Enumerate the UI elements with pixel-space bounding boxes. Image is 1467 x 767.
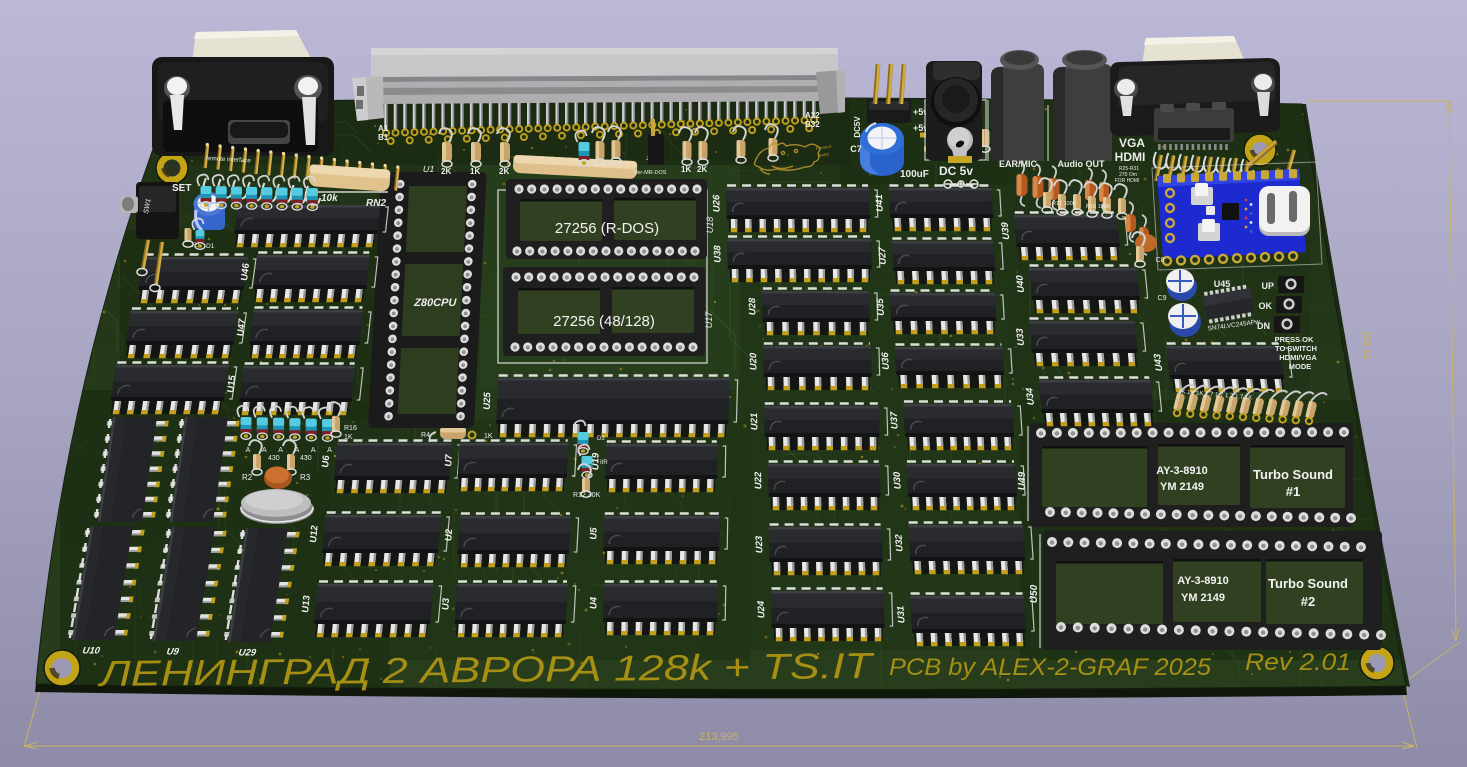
svg-text:U15: U15 <box>225 375 238 393</box>
svg-text:U24: U24 <box>756 600 768 618</box>
svg-text:R18 100K: R18 100K <box>1086 204 1111 210</box>
svg-text:C9: C9 <box>1158 295 1167 302</box>
svg-text:430: 430 <box>268 455 280 462</box>
svg-text:DC5V: DC5V <box>853 116 862 138</box>
svg-text:U50: U50 <box>1029 584 1040 603</box>
svg-text:213,995: 213,995 <box>699 731 739 743</box>
svg-text:27256 (R-DOS): 27256 (R-DOS) <box>555 220 659 237</box>
svg-text:RN2: RN2 <box>366 198 386 209</box>
svg-text:Turbo Sound: Turbo Sound <box>1253 467 1333 482</box>
svg-text:R12 30K: R12 30K <box>573 492 601 499</box>
svg-text:U4: U4 <box>588 596 599 609</box>
svg-text:U17: U17 <box>704 311 714 329</box>
svg-text:U12: U12 <box>308 525 321 543</box>
svg-text:U1: U1 <box>423 164 435 174</box>
svg-text:1K: 1K <box>344 434 353 441</box>
svg-text:Z80CPU: Z80CPU <box>413 297 458 309</box>
svg-text:EAR/MIC: EAR/MIC <box>999 159 1038 169</box>
svg-text:Audio OUT: Audio OUT <box>1058 159 1105 169</box>
svg-text:U47: U47 <box>235 318 248 336</box>
svg-text:AY-3-8910: AY-3-8910 <box>1177 575 1229 587</box>
svg-text:DN: DN <box>1257 321 1270 331</box>
svg-text:U5: U5 <box>588 527 599 540</box>
svg-text:1K: 1K <box>470 167 480 176</box>
svg-text:OK: OK <box>1259 301 1273 311</box>
svg-text:U40: U40 <box>1014 275 1027 293</box>
svg-text:UP: UP <box>1261 281 1274 291</box>
svg-text:U35: U35 <box>875 298 887 316</box>
svg-text:HDMI/VGA: HDMI/VGA <box>1279 353 1317 362</box>
svg-text:A: A <box>262 447 267 454</box>
svg-text:R3: R3 <box>300 473 311 482</box>
svg-text:1K: 1K <box>681 165 691 174</box>
svg-text:SET: SET <box>172 183 191 194</box>
svg-text:U26: U26 <box>711 194 722 212</box>
svg-text:VGA: VGA <box>1119 136 1145 150</box>
svg-text:1K: 1K <box>484 433 493 440</box>
svg-text:TO SWITCH: TO SWITCH <box>1275 344 1317 353</box>
svg-text:A: A <box>278 447 283 454</box>
svg-text:B1: B1 <box>378 133 389 142</box>
svg-text:U13: U13 <box>300 595 313 613</box>
svg-text:118,11: 118,11 <box>1361 330 1372 360</box>
svg-text:D1: D1 <box>206 243 215 250</box>
svg-text:Rev 2.01: Rev 2.01 <box>1245 649 1351 676</box>
svg-text:U21: U21 <box>749 413 760 430</box>
svg-text:A1: A1 <box>378 124 389 133</box>
svg-text:U20: U20 <box>748 352 759 370</box>
svg-text:R4: R4 <box>421 432 430 439</box>
svg-text:C8: C8 <box>1156 257 1165 264</box>
svg-text:AY-3-8910: AY-3-8910 <box>1156 465 1208 477</box>
svg-text:C7: C7 <box>850 144 862 154</box>
svg-text:U49: U49 <box>1017 471 1028 490</box>
svg-text:PRESS OK: PRESS OK <box>1275 335 1314 344</box>
svg-text:U33: U33 <box>1014 328 1027 346</box>
svg-text:U30: U30 <box>892 471 904 489</box>
svg-text:U32: U32 <box>893 534 905 552</box>
svg-text:U39: U39 <box>1000 222 1013 240</box>
svg-text:U38: U38 <box>712 245 723 263</box>
svg-text:U37: U37 <box>889 411 901 429</box>
svg-text:+5v: +5v <box>913 123 928 133</box>
svg-text:U10: U10 <box>82 646 102 657</box>
svg-text:FOR HDMI: FOR HDMI <box>1115 178 1140 184</box>
svg-text:#1: #1 <box>1286 484 1300 499</box>
svg-text:U6: U6 <box>320 455 332 468</box>
svg-text:U41: U41 <box>874 194 886 211</box>
svg-text:+5v: +5v <box>913 107 928 117</box>
svg-text:430: 430 <box>300 455 312 462</box>
svg-text:#2: #2 <box>1301 594 1315 609</box>
svg-text:U45: U45 <box>1214 279 1231 289</box>
svg-text:2K: 2K <box>499 167 509 176</box>
svg-text:U23: U23 <box>754 535 766 553</box>
svg-text:U31: U31 <box>895 606 907 623</box>
svg-text:R17 100K: R17 100K <box>1052 201 1077 207</box>
svg-text:HDMI: HDMI <box>1115 150 1146 164</box>
svg-text:100uF: 100uF <box>900 169 929 180</box>
svg-text:U46: U46 <box>239 263 252 281</box>
svg-text:PCB by ALEX-2-GRAF 2025: PCB by ALEX-2-GRAF 2025 <box>889 654 1212 681</box>
svg-text:A32: A32 <box>805 111 820 120</box>
svg-text:A: A <box>311 447 316 454</box>
svg-text:U2: U2 <box>443 528 455 541</box>
svg-text:U22: U22 <box>753 471 764 489</box>
svg-text:YM 2149: YM 2149 <box>1160 481 1204 493</box>
svg-text:U27: U27 <box>877 247 889 265</box>
svg-text:U18: U18 <box>705 217 715 234</box>
svg-text:27256 (48/128): 27256 (48/128) <box>553 313 655 330</box>
svg-text:Ver-MR-DOS: Ver-MR-DOS <box>634 170 667 176</box>
svg-text:U7: U7 <box>443 454 455 467</box>
svg-text:U28: U28 <box>747 297 758 315</box>
svg-text:DC 5v: DC 5v <box>939 164 973 178</box>
svg-text:MODE: MODE <box>1289 362 1312 371</box>
svg-text:B32: B32 <box>805 120 820 129</box>
svg-text:D3: D3 <box>597 436 605 442</box>
svg-text:U3: U3 <box>440 597 452 610</box>
svg-text:A: A <box>246 447 251 454</box>
svg-text:U36: U36 <box>880 352 892 370</box>
svg-text:10k: 10k <box>321 193 338 204</box>
svg-text:A: A <box>327 447 332 454</box>
svg-text:YM 2149: YM 2149 <box>1181 592 1225 604</box>
svg-text:ЛЕНИНГРАД 2 АВРОРА 128k + TS.I: ЛЕНИНГРАД 2 АВРОРА 128k + TS.IT <box>97 645 876 694</box>
svg-text:U34: U34 <box>1024 387 1037 405</box>
svg-text:Turbo Sound: Turbo Sound <box>1268 576 1348 591</box>
svg-text:2K: 2K <box>697 165 707 174</box>
svg-text:U25: U25 <box>482 392 494 410</box>
svg-text:2K: 2K <box>441 167 451 176</box>
svg-text:IIR: IIR <box>600 460 608 466</box>
svg-text:R2: R2 <box>242 473 253 482</box>
svg-text:R16: R16 <box>344 425 357 432</box>
